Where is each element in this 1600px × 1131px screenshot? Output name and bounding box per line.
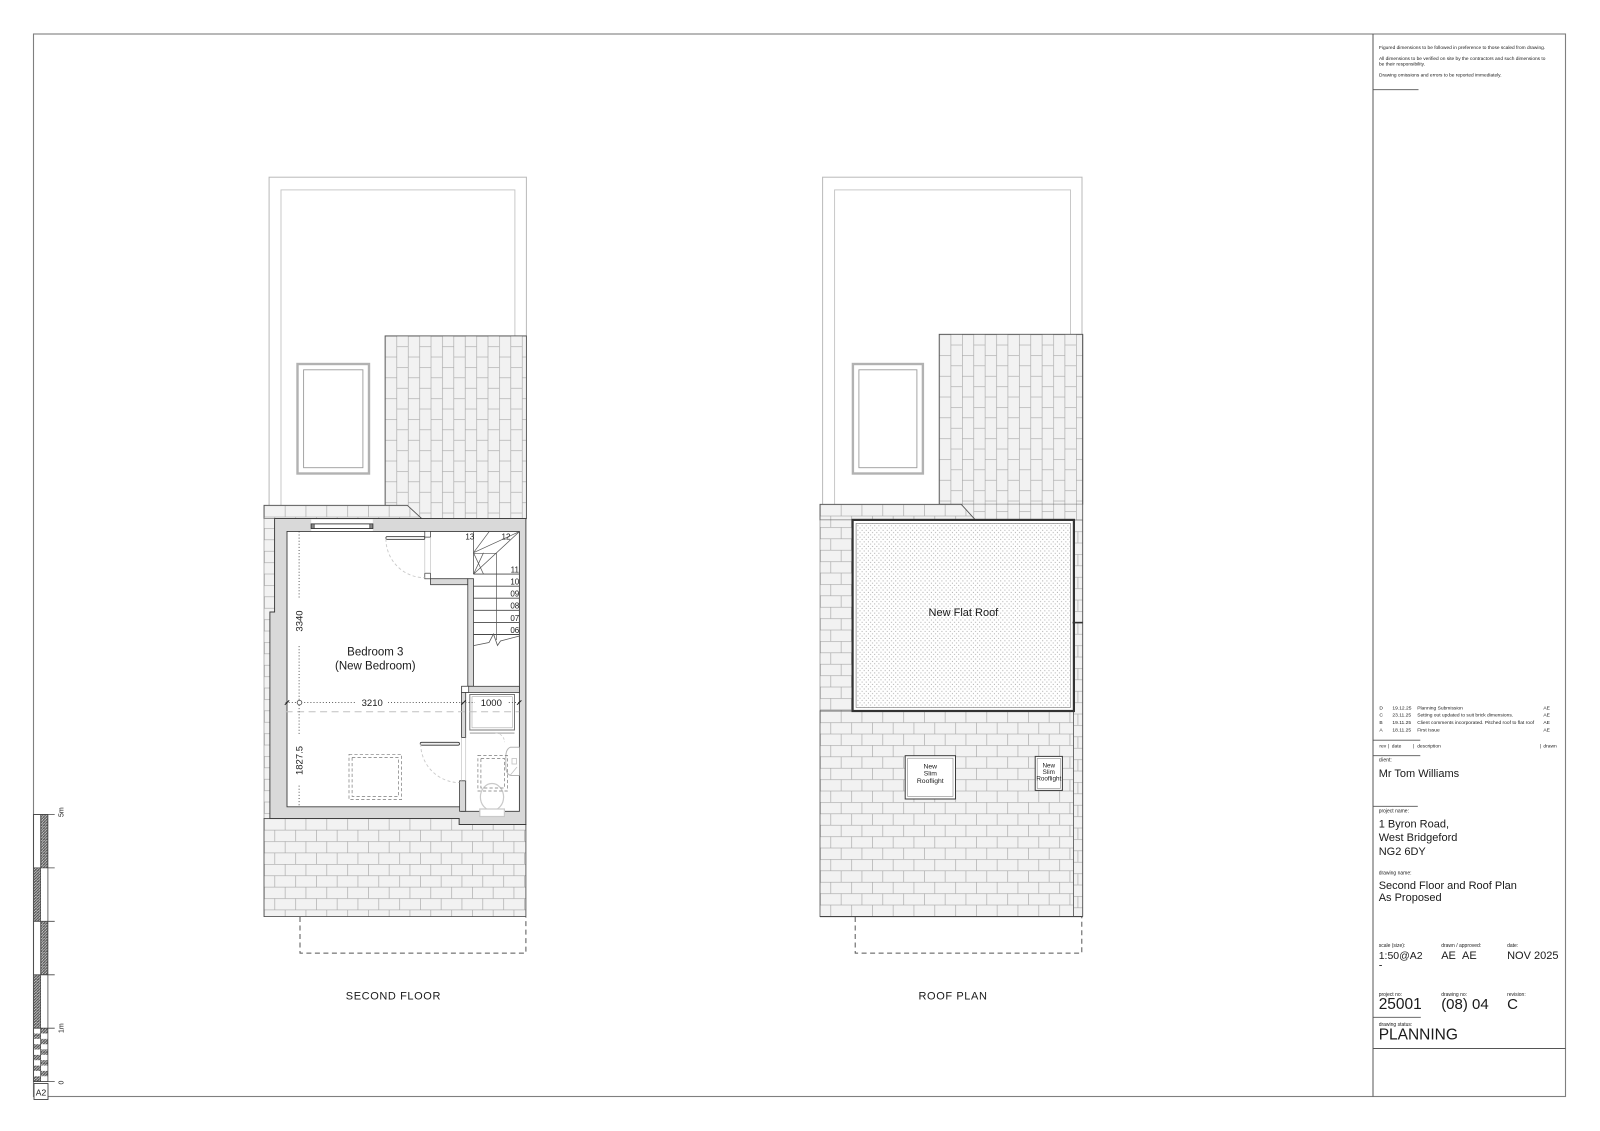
svg-text:1000: 1000 [481, 698, 502, 709]
svg-text:AE: AE [1543, 728, 1550, 734]
svg-text:18.11.25: 18.11.25 [1392, 728, 1411, 734]
svg-text:5m: 5m [59, 807, 66, 817]
svg-text:PLANNING: PLANNING [1379, 1026, 1458, 1043]
svg-text:Rooflight: Rooflight [917, 778, 944, 785]
svg-text:Bedroom 3: Bedroom 3 [347, 647, 403, 659]
svg-text:Mr Tom Williams: Mr Tom Williams [1379, 768, 1460, 780]
svg-text:A2: A2 [36, 1088, 47, 1098]
svg-text:Setting out updated to suit br: Setting out updated to suit brick dimens… [1417, 713, 1513, 719]
svg-text:drawn: drawn [1543, 744, 1557, 750]
svg-text:3210: 3210 [362, 698, 383, 709]
svg-text:project name:: project name: [1379, 808, 1409, 814]
svg-text:rev: rev [1379, 744, 1386, 750]
svg-text:drawing name:: drawing name: [1379, 871, 1412, 877]
svg-text:Drawing omissions and errors t: Drawing omissions and errors to be repor… [1379, 73, 1502, 79]
svg-text:B: B [1379, 720, 1382, 726]
svg-text:Rooflight: Rooflight [1036, 776, 1061, 783]
svg-text:07: 07 [510, 614, 519, 623]
svg-text:NG2 6DY: NG2 6DY [1379, 846, 1427, 858]
svg-text:19.11.25: 19.11.25 [1392, 720, 1411, 726]
svg-text:AE: AE [1543, 713, 1550, 719]
svg-text:1827.5: 1827.5 [294, 746, 305, 775]
svg-text:13: 13 [465, 533, 474, 542]
svg-text:23.11.25: 23.11.25 [1392, 713, 1411, 719]
svg-text:10: 10 [510, 578, 519, 587]
svg-text:West Bridgeford: West Bridgeford [1379, 832, 1458, 844]
svg-text:NOV 2025: NOV 2025 [1507, 950, 1558, 962]
svg-text:11: 11 [511, 566, 520, 575]
svg-text:0: 0 [59, 1081, 66, 1085]
svg-text:be their responsibility.: be their responsibility. [1379, 62, 1425, 68]
svg-text:drawn / approved:: drawn / approved: [1441, 943, 1481, 949]
svg-text:12: 12 [502, 533, 511, 542]
svg-text:client:: client: [1379, 758, 1392, 764]
svg-text:-: - [1379, 960, 1383, 972]
svg-text:New: New [923, 763, 937, 770]
svg-text:Slim: Slim [924, 771, 938, 778]
svg-text:Second Floor and Roof Plan: Second Floor and Roof Plan [1379, 880, 1517, 892]
svg-text:06: 06 [510, 626, 519, 635]
svg-text:AE: AE [1462, 950, 1477, 962]
svg-text:1:50@A2: 1:50@A2 [1379, 950, 1423, 962]
svg-text:All dimensions to be verified: All dimensions to be verified on site by… [1379, 56, 1546, 62]
svg-text:scale (size):: scale (size): [1379, 943, 1406, 949]
svg-text:ROOF PLAN: ROOF PLAN [919, 991, 988, 1003]
svg-text:3340: 3340 [294, 610, 305, 631]
svg-text:|: | [1413, 744, 1414, 750]
svg-text:|: | [1540, 744, 1541, 750]
svg-text:First Issue: First Issue [1417, 728, 1440, 734]
svg-text:19.12.25: 19.12.25 [1392, 705, 1411, 711]
svg-text:08: 08 [510, 602, 519, 611]
svg-text:SECOND FLOOR: SECOND FLOOR [346, 991, 441, 1003]
svg-text:D: D [1379, 705, 1383, 711]
svg-text:AE: AE [1543, 720, 1550, 726]
svg-text:09: 09 [510, 590, 519, 599]
svg-text:|: | [1388, 744, 1389, 750]
svg-text:1 Byron Road,: 1 Byron Road, [1379, 818, 1449, 830]
svg-text:Figured dimensions to be follo: Figured dimensions to be followed in pre… [1379, 45, 1545, 51]
svg-text:C: C [1379, 713, 1383, 719]
svg-text:date:: date: [1507, 943, 1518, 949]
svg-text:C: C [1507, 996, 1518, 1013]
svg-text:description: description [1417, 744, 1441, 750]
svg-text:1m: 1m [59, 1023, 66, 1033]
svg-text:25001: 25001 [1379, 996, 1422, 1013]
svg-text:Planning Submission: Planning Submission [1417, 705, 1463, 711]
svg-text:(08) 04: (08) 04 [1441, 996, 1489, 1013]
svg-text:Client comments incorporated.: Client comments incorporated. Pitched ro… [1417, 720, 1535, 726]
svg-text:AE: AE [1441, 950, 1456, 962]
svg-text:New Flat Roof: New Flat Roof [929, 607, 1000, 619]
svg-text:AE: AE [1543, 705, 1550, 711]
svg-text:(New Bedroom): (New Bedroom) [335, 661, 416, 673]
svg-text:As Proposed: As Proposed [1379, 892, 1442, 904]
svg-text:date: date [1392, 744, 1402, 750]
